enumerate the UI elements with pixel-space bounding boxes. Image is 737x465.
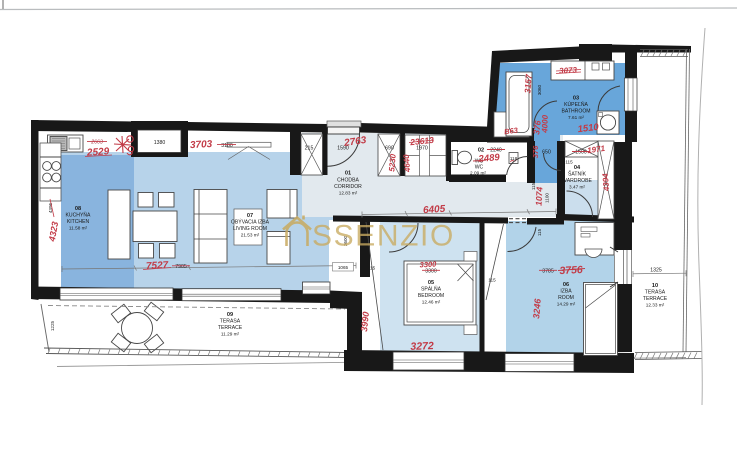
svg-text:115: 115: [368, 266, 376, 271]
svg-text:3060: 3060: [537, 84, 542, 95]
svg-text:1225: 1225: [50, 320, 55, 331]
svg-text:2663: 2663: [90, 140, 103, 146]
svg-text:CHODBA: CHODBA: [337, 178, 359, 184]
svg-text:TERRACE: TERRACE: [218, 325, 243, 331]
svg-text:4000: 4000: [540, 114, 550, 134]
svg-text:12.46 m²: 12.46 m²: [422, 300, 441, 305]
svg-text:SPÁLŇA: SPÁLŇA: [421, 286, 442, 293]
svg-text:TERASA: TERASA: [220, 319, 241, 325]
svg-text:5230: 5230: [387, 153, 398, 172]
svg-text:ROOM: ROOM: [558, 295, 574, 301]
svg-text:2529: 2529: [86, 146, 110, 159]
svg-text:KÚPEĽŇA: KÚPEĽŇA: [564, 101, 588, 108]
svg-text:115: 115: [565, 160, 573, 165]
svg-text:3180: 3180: [221, 143, 233, 149]
svg-text:115: 115: [488, 278, 496, 283]
svg-text:06: 06: [563, 282, 569, 288]
svg-text:3246: 3246: [531, 297, 543, 319]
svg-text:BEDROOM: BEDROOM: [418, 293, 444, 299]
svg-text:3300: 3300: [419, 260, 437, 270]
svg-text:7905: 7905: [175, 264, 187, 270]
svg-text:3157: 3157: [522, 73, 533, 94]
svg-text:3703: 3703: [190, 139, 213, 151]
svg-text:KITCHEN: KITCHEN: [67, 219, 90, 225]
svg-text:TERASA: TERASA: [645, 290, 666, 296]
svg-text:WARDROBE: WARDROBE: [562, 178, 592, 184]
svg-text:650: 650: [542, 150, 551, 156]
svg-text:OBÝVACIA IZBA: OBÝVACIA IZBA: [231, 219, 270, 226]
svg-text:2.09 m²: 2.09 m²: [470, 171, 486, 176]
svg-text:21.53 m²: 21.53 m²: [241, 233, 260, 238]
svg-text:BATHROOM: BATHROOM: [561, 109, 590, 115]
svg-text:1074: 1074: [534, 186, 545, 206]
svg-text:12.83 m²: 12.83 m²: [339, 191, 358, 196]
svg-text:07: 07: [247, 213, 253, 219]
svg-text:11.29 m²: 11.29 m²: [221, 332, 240, 337]
svg-text:7.61 m²: 7.61 m²: [568, 115, 584, 120]
svg-text:4640: 4640: [402, 153, 413, 173]
svg-text:IZBA: IZBA: [560, 289, 572, 295]
svg-text:TERRACE: TERRACE: [643, 296, 668, 302]
svg-text:6405: 6405: [423, 204, 446, 217]
svg-text:CORRIDOR: CORRIDOR: [334, 184, 362, 190]
svg-text:115: 115: [537, 228, 542, 236]
svg-text:376: 376: [531, 145, 540, 158]
svg-text:3272: 3272: [410, 340, 434, 353]
svg-text:1100: 1100: [545, 193, 550, 203]
svg-text:1380: 1380: [154, 140, 166, 146]
svg-text:2489: 2489: [477, 152, 501, 165]
svg-text:SSENZIO: SSENZIO: [312, 220, 455, 253]
svg-text:215: 215: [305, 146, 314, 152]
svg-text:4394: 4394: [601, 172, 612, 192]
svg-text:3990: 3990: [359, 311, 371, 332]
svg-text:01: 01: [345, 171, 351, 177]
svg-text:04: 04: [574, 165, 581, 171]
svg-text:3785: 3785: [542, 269, 554, 275]
svg-text:12.33 m²: 12.33 m²: [646, 303, 665, 308]
svg-text:1325: 1325: [650, 268, 662, 274]
svg-text:LIVING ROOM: LIVING ROOM: [233, 226, 267, 232]
svg-text:08: 08: [75, 206, 81, 212]
svg-text:690: 690: [385, 146, 394, 152]
svg-text:11.58 m²: 11.58 m²: [69, 226, 88, 231]
svg-text:3300: 3300: [425, 269, 437, 275]
svg-text:KUCHYŇA: KUCHYŇA: [66, 212, 92, 219]
svg-text:7527: 7527: [146, 260, 169, 272]
svg-text:ŠATNÍK: ŠATNÍK: [568, 171, 587, 178]
svg-text:14.29 m²: 14.29 m²: [557, 302, 576, 307]
svg-text:1500: 1500: [575, 150, 587, 156]
svg-text:09: 09: [227, 312, 233, 318]
svg-text:3.47 m²: 3.47 m²: [569, 185, 585, 190]
svg-text:05: 05: [428, 280, 434, 286]
svg-text:1065: 1065: [338, 265, 349, 270]
svg-text:10: 10: [652, 283, 658, 289]
svg-text:03: 03: [573, 96, 579, 102]
